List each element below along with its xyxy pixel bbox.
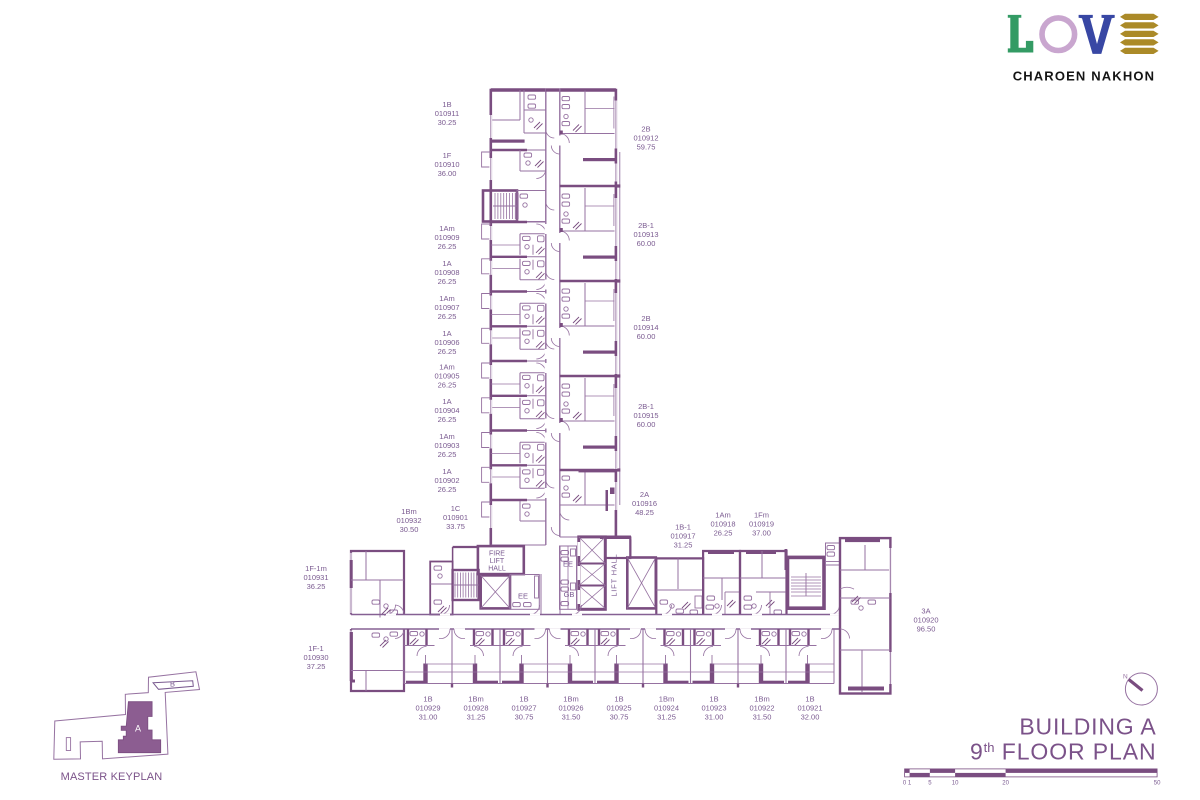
- svg-text:N: N: [1123, 674, 1128, 681]
- svg-text:A: A: [135, 724, 141, 734]
- svg-text:10: 10: [952, 781, 959, 787]
- svg-text:1B01092331.00: 1B01092331.00: [701, 695, 726, 722]
- svg-text:MASTER KEYPLAN: MASTER KEYPLAN: [61, 771, 163, 783]
- svg-text:1B01091130.25: 1B01091130.25: [435, 100, 459, 127]
- svg-text:1Bm01092631.50: 1Bm01092631.50: [558, 695, 583, 722]
- svg-text:1Bm01093230.50: 1Bm01093230.50: [396, 507, 421, 534]
- svg-text:2B-101091560.00: 2B-101091560.00: [633, 402, 658, 429]
- svg-text:CHAROEN NAKHON: CHAROEN NAKHON: [1013, 69, 1155, 84]
- svg-text:5: 5: [928, 781, 932, 787]
- svg-text:1Am01090726.25: 1Am01090726.25: [434, 294, 459, 321]
- svg-text:50: 50: [1154, 781, 1161, 787]
- svg-text:B: B: [170, 680, 175, 689]
- svg-text:1Am01090526.25: 1Am01090526.25: [434, 363, 459, 390]
- svg-text:1Am01090326.25: 1Am01090326.25: [434, 432, 459, 459]
- svg-text:1C01090133.75: 1C01090133.75: [443, 504, 468, 531]
- svg-text:1B01092530.75: 1B01092530.75: [606, 695, 631, 722]
- svg-text:1B01092931.00: 1B01092931.00: [415, 695, 440, 722]
- svg-text:1Am01091826.25: 1Am01091826.25: [710, 511, 735, 538]
- svg-text:1A01090226.25: 1A01090226.25: [434, 467, 459, 494]
- svg-text:FIRELIFTHALL: FIRELIFTHALL: [488, 551, 506, 573]
- svg-text:1B01092132.00: 1B01092132.00: [797, 695, 822, 722]
- svg-text:2B-101091360.00: 2B-101091360.00: [633, 221, 658, 248]
- svg-text:BUILDING A: BUILDING A: [1019, 714, 1156, 740]
- svg-text:1Fm01091937.00: 1Fm01091937.00: [749, 511, 774, 538]
- svg-text:1B-101091731.25: 1B-101091731.25: [670, 523, 695, 550]
- svg-text:2A01091648.25: 2A01091648.25: [632, 490, 657, 517]
- svg-text:1Bm01092431.25: 1Bm01092431.25: [654, 695, 679, 722]
- svg-text:3A01092096.50: 3A01092096.50: [913, 607, 938, 634]
- svg-text:1: 1: [908, 781, 912, 787]
- svg-text:1A01090426.25: 1A01090426.25: [434, 397, 459, 424]
- svg-text:2B01091460.00: 2B01091460.00: [633, 314, 658, 341]
- svg-text:LIFT HALL: LIFT HALL: [610, 553, 619, 596]
- svg-text:EE: EE: [563, 560, 573, 569]
- svg-text:1A01090826.25: 1A01090826.25: [434, 259, 459, 286]
- svg-text:9th FLOOR PLAN: 9th FLOOR PLAN: [970, 739, 1157, 765]
- svg-text:1A01090626.25: 1A01090626.25: [434, 329, 459, 356]
- svg-text:1B01092730.75: 1B01092730.75: [511, 695, 536, 722]
- svg-text:1F01091036.00: 1F01091036.00: [434, 151, 459, 178]
- svg-text:1F-101093037.25: 1F-101093037.25: [303, 644, 328, 671]
- svg-text:1Am01090926.25: 1Am01090926.25: [434, 224, 459, 251]
- svg-text:20: 20: [1002, 781, 1009, 787]
- svg-text:GB: GB: [564, 590, 575, 599]
- svg-text:2B01091259.75: 2B01091259.75: [633, 125, 658, 152]
- svg-text:1Bm01092231.50: 1Bm01092231.50: [749, 695, 774, 722]
- svg-text:0: 0: [903, 781, 907, 787]
- svg-text:1Bm01092831.25: 1Bm01092831.25: [463, 695, 488, 722]
- svg-text:1F-1m01093136.25: 1F-1m01093136.25: [303, 564, 328, 591]
- svg-text:EE: EE: [518, 592, 528, 601]
